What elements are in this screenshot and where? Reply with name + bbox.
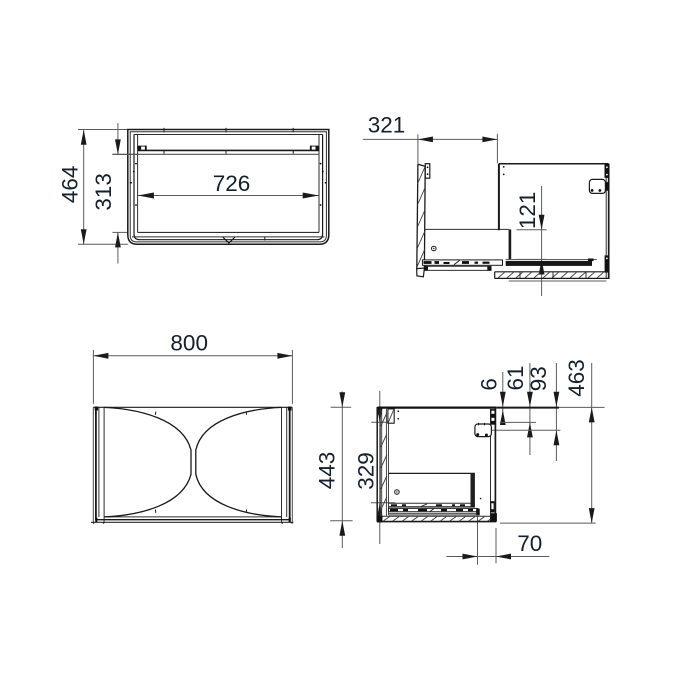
svg-text:464: 464 [58, 166, 83, 204]
svg-text:121: 121 [515, 192, 540, 230]
svg-text:726: 726 [213, 171, 251, 196]
svg-text:70: 70 [517, 531, 542, 556]
svg-text:93: 93 [526, 366, 551, 391]
svg-text:321: 321 [368, 112, 406, 137]
svg-text:443: 443 [315, 452, 340, 490]
svg-text:463: 463 [564, 359, 589, 397]
svg-text:6: 6 [477, 378, 502, 391]
svg-text:313: 313 [91, 173, 116, 211]
svg-text:800: 800 [170, 330, 208, 355]
svg-text:61: 61 [503, 365, 528, 390]
svg-text:329: 329 [354, 452, 379, 490]
